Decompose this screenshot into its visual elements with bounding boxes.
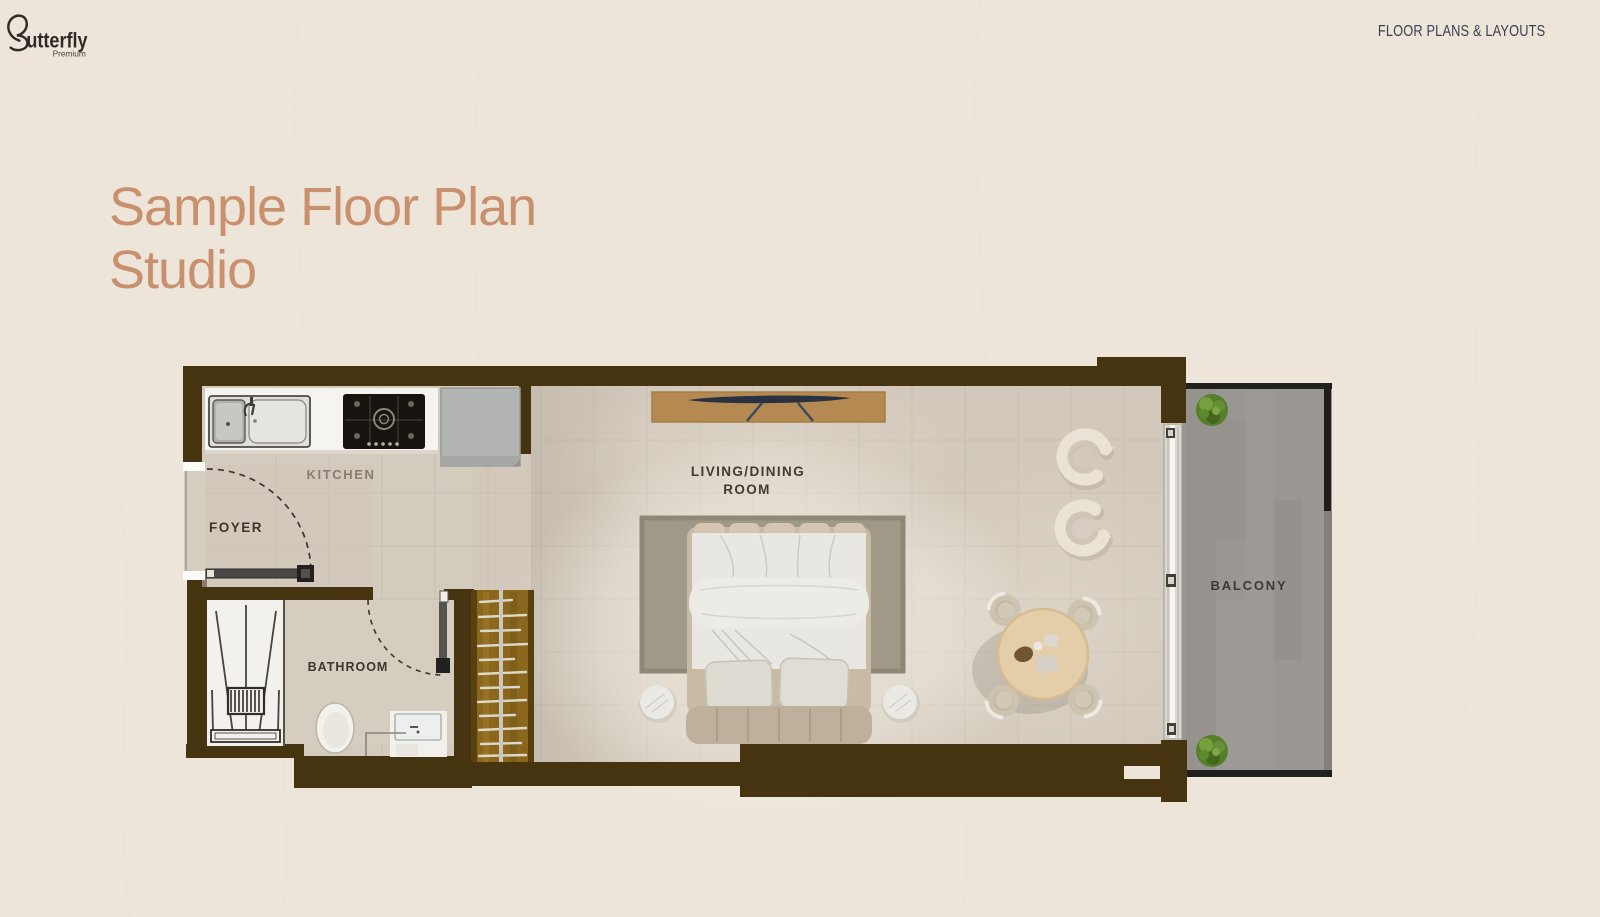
svg-text:ROOM: ROOM bbox=[723, 482, 771, 497]
svg-text:BALCONY: BALCONY bbox=[1211, 578, 1288, 593]
svg-text:LIVING/DINING: LIVING/DINING bbox=[691, 464, 805, 479]
svg-text:BATHROOM: BATHROOM bbox=[308, 660, 389, 674]
svg-text:FOYER: FOYER bbox=[209, 520, 263, 535]
